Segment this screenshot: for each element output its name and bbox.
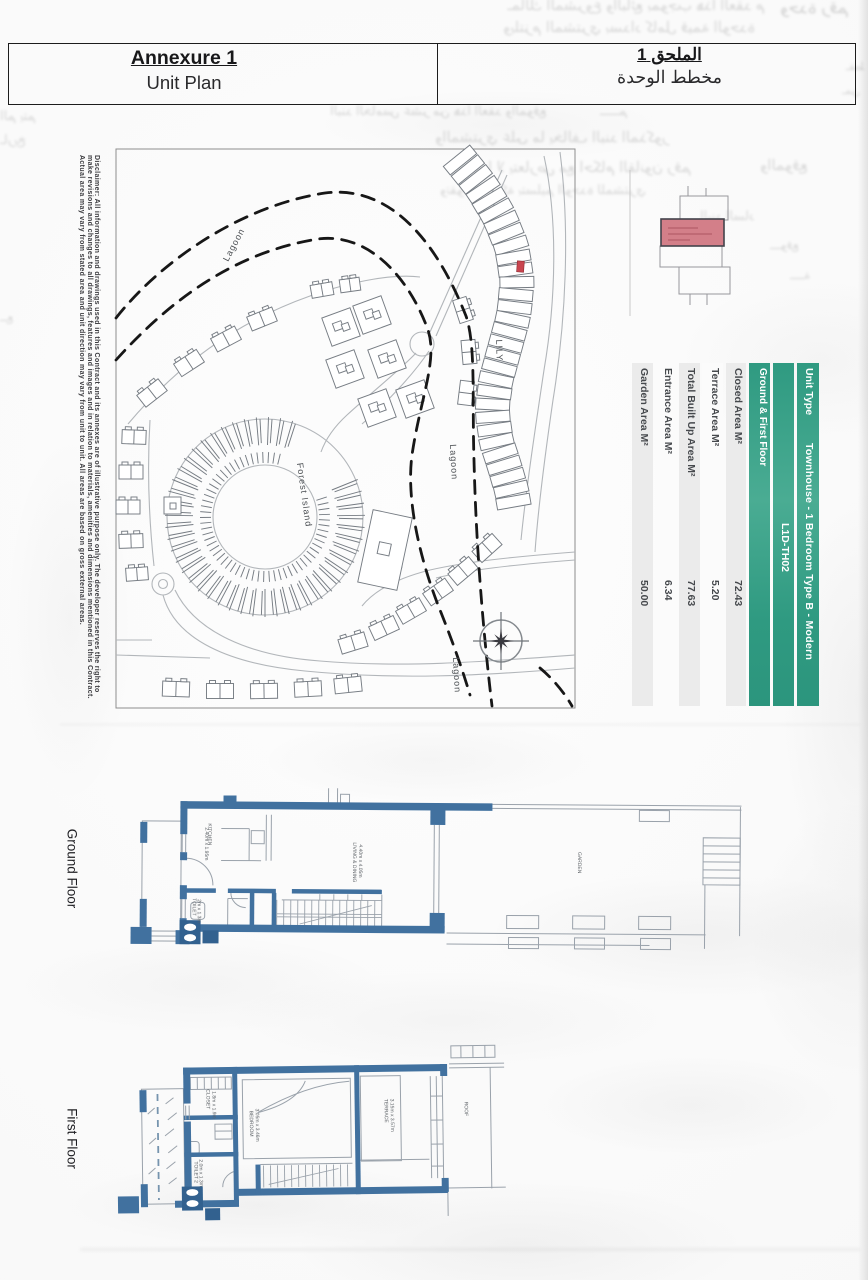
svg-text:2.0m x 1.3m: 2.0m x 1.3m [197, 1159, 203, 1187]
svg-text:TERRACE: TERRACE [383, 1099, 389, 1124]
svg-text:3.05m x 3.46m: 3.05m x 3.46m [254, 1109, 260, 1142]
svg-text:CLOSET: CLOSET [204, 1089, 210, 1109]
svg-text:3.15m x 3.57m: 3.15m x 3.57m [389, 1099, 395, 1132]
svg-text:1.8m x 1.9m: 1.8m x 1.9m [210, 1091, 216, 1119]
svg-text:BEDROOM: BEDROOM [248, 1111, 254, 1137]
svg-text:ROOF: ROOF [463, 1102, 469, 1117]
